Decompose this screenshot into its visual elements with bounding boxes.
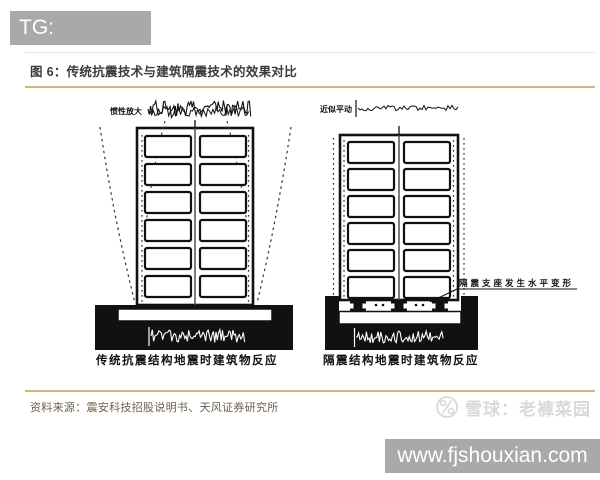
source-line: 资料来源：震安科技招股说明书、天风证券研究所: [30, 399, 279, 415]
sway-envelope-left: [100, 127, 135, 303]
watermark: 雪球：老褲菜园: [435, 394, 591, 420]
snowball-icon: [435, 395, 459, 419]
left-foundation-slab: [118, 309, 272, 321]
left-top-label: 惯性放大: [110, 106, 142, 116]
watermark-text: 雪球：老褲菜园: [465, 395, 591, 420]
bearing-label: 隔震支座发生水平变形: [459, 278, 574, 288]
footer-url-bar: www.fjshouxian.com: [385, 439, 600, 473]
right-diagram-caption: 隔震结构地震时建筑物反应: [301, 352, 501, 368]
left-diagram-caption: 传统抗震结构地震时建筑物反应: [87, 352, 287, 368]
sway-envelope-right: [257, 127, 291, 303]
right-seismic-wave: [358, 105, 458, 110]
right-foundation-slab: [339, 312, 461, 325]
source-top-rule: [25, 390, 595, 392]
right-building-diagram: 近似平动: [320, 100, 577, 350]
right-top-label: 近似平动: [320, 104, 352, 114]
left-building-diagram: 惯性放大: [95, 101, 293, 350]
report-figure-page: TG: MYYJJPP 图 6：传统抗震技术与建筑隔震技术的效果对比 惯性放大: [0, 0, 600, 480]
